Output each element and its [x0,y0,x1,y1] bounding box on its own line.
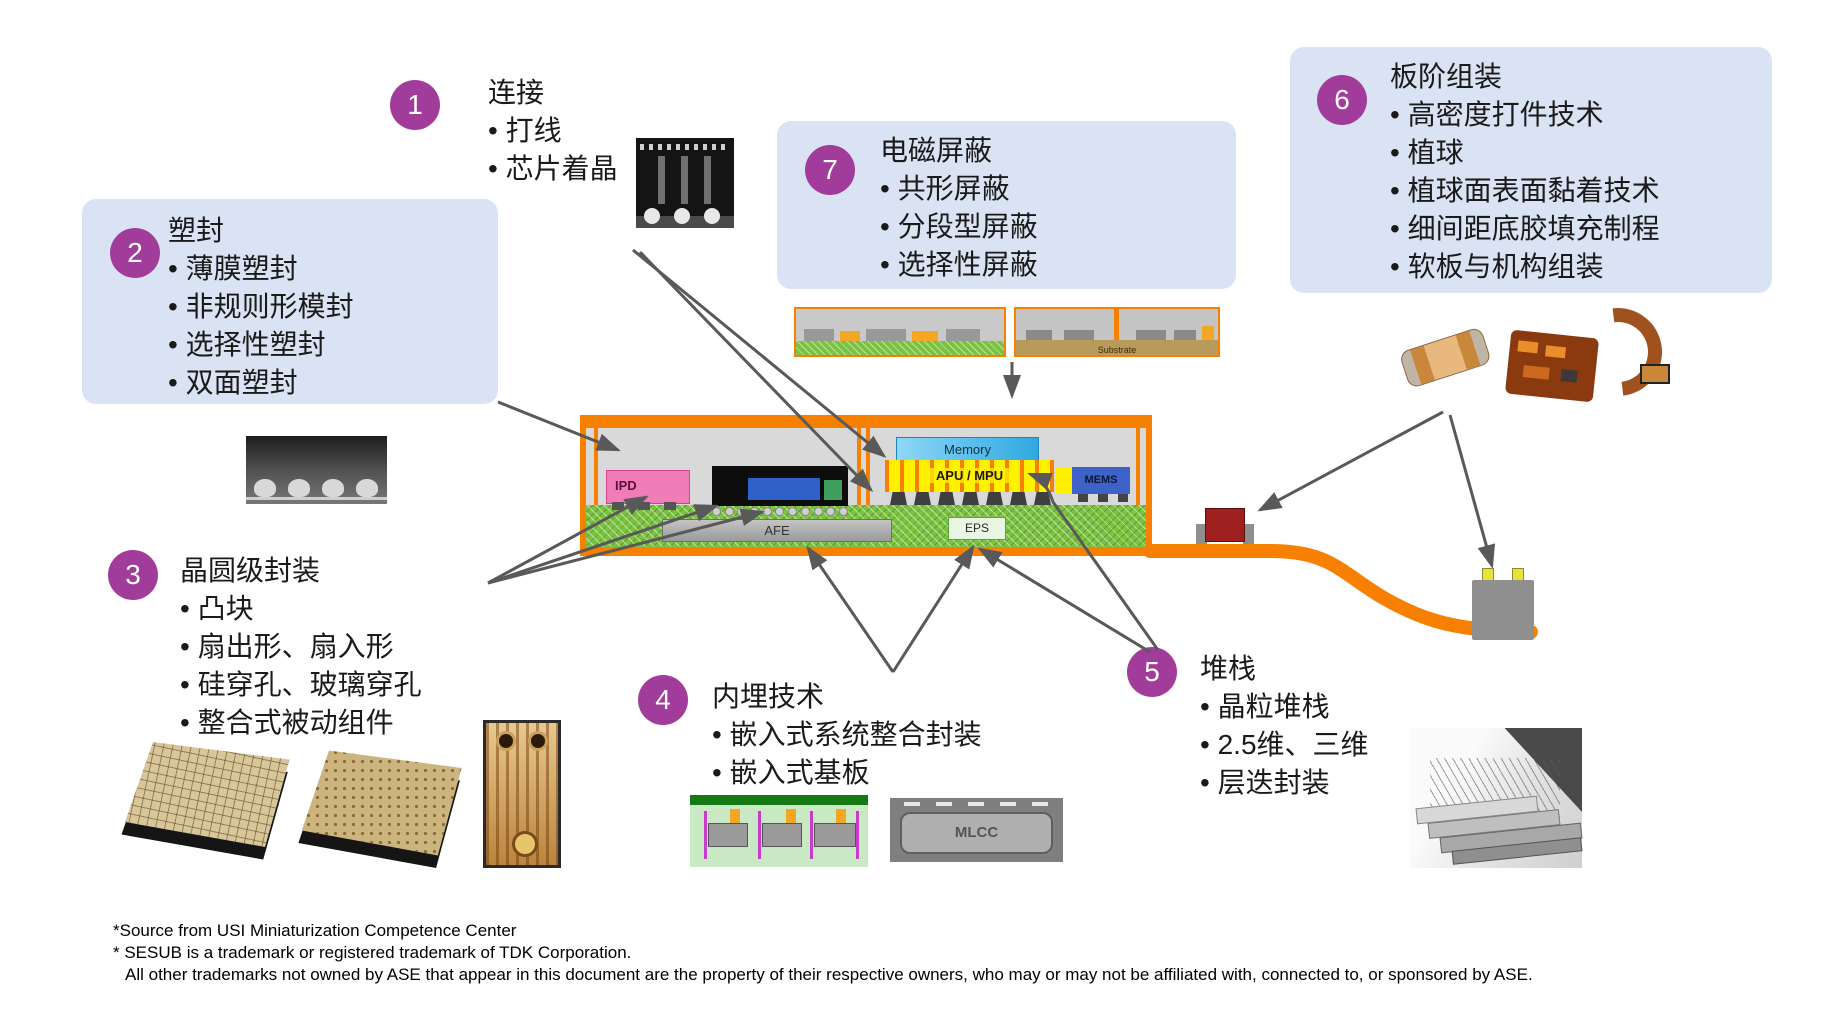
photo-stacked-die [1410,728,1582,868]
callout-number-2: 2 [110,228,160,278]
photo-wire-bond-micrograph [636,138,734,228]
arrow-assembly-to-connector [1450,415,1492,566]
photo-detail [856,811,859,859]
callout-number-6: 6 [1317,75,1367,125]
photo-detail [704,208,720,224]
photo-detail [810,811,813,859]
apu-solder [938,492,955,505]
mems-bump [1078,494,1088,502]
photo-detail [512,831,538,857]
photo-detail [322,479,344,497]
package-cross-section-diagram: IPD Memory APU / MPU MEMS [580,415,1152,556]
photo-detail [708,823,748,847]
bullet: 薄膜塑封 [168,250,354,288]
apu-mpu-label: APU / MPU [924,468,1016,483]
callout-title-connection: 连接 [488,74,618,112]
photo-detail [968,802,984,806]
mems-block: MEMS [1072,467,1130,494]
photo-detail [1026,330,1052,340]
callout-embedded-technology: 内埋技术 嵌入式系统整合封装 嵌入式基板 [712,678,982,792]
apu-solder [1010,492,1027,505]
photo-detail [1032,802,1048,806]
photo-detail [814,823,856,847]
shield-wall-divider-b [866,428,870,505]
eps-embedded-block: EPS [948,517,1006,540]
callout-board-level-assembly: 板阶组装 高密度打件技术 植球 植球面表面黏着技术 细间距底胶填充制程 软板与机… [1390,58,1660,286]
bullet: 扇出形、扇入形 [180,628,422,666]
photo-detail [866,329,906,341]
photo-detail [644,208,660,224]
photo-detail [804,329,834,341]
photo-detail [936,802,952,806]
ipd-bump [638,502,650,510]
apu-solder [986,492,1003,505]
footnote-trademark-disclaimer: All other trademarks not owned by ASE th… [125,964,1533,986]
mlcc-label: MLCC [955,824,998,841]
bullet: 选择性塑封 [168,326,354,364]
photo-detail [1640,364,1670,384]
apu-solder [1034,492,1051,505]
bullet: 晶粒堆栈 [1200,688,1369,726]
photo-detail [1202,326,1214,340]
apu-mpu-block: APU / MPU [885,460,1054,492]
photo-detail [1545,345,1566,358]
photo-detail [836,809,846,823]
photo-detail [1000,802,1016,806]
photo-flex-pcb-module [1508,308,1670,406]
ipd-bump [664,502,676,510]
arrow-embedded-to-eps [893,547,973,672]
arrow-stacking-to-substrate [980,549,1150,652]
apu-solder [914,492,931,505]
callout-molding: 塑封 薄膜塑封 非规则形模封 选择性塑封 双面塑封 [168,212,354,402]
photo-emi-conformal-shield [794,307,1006,357]
bullet: 共形屏蔽 [880,170,1038,208]
package-right-shield [1146,415,1152,547]
photo-detail [674,208,690,224]
callout-number-4: 4 [638,675,688,725]
callout-stacking: 堆栈 晶粒堆栈 2.5维、三维 层迭封装 [1200,650,1369,802]
photo-molding-micrograph [246,436,387,504]
photo-detail [528,731,548,751]
photo-detail [288,479,310,497]
photo-detail [254,479,276,497]
bullet: 层迭封装 [1200,764,1369,802]
ipd-block: IPD [606,470,690,504]
photo-detail [246,497,387,500]
afe-label: AFE [663,523,891,538]
solder-bump-row [712,507,848,516]
memory-label: Memory [897,442,1038,457]
bullet: 分段型屏蔽 [880,208,1038,246]
bullet: 高密度打件技术 [1390,96,1660,134]
bullet: 植球 [1390,134,1660,172]
shield-wall-divider-a [857,428,861,505]
bullet: 植球面表面黏着技术 [1390,172,1660,210]
photo-detail [912,331,938,341]
bullet: 软板与机构组装 [1390,248,1660,286]
bullet: 凸块 [180,590,422,628]
footnote-source: *Source from USI Miniaturization Compete… [113,920,516,942]
photo-detail [840,331,860,341]
photo-detail [1517,340,1538,353]
ipd-bump [612,502,624,510]
photo-detail [1174,330,1196,340]
bullet: 整合式被动组件 [180,704,422,742]
arrow-assembly-to-component [1260,412,1443,510]
flip-chip-die-block [712,466,848,506]
mems-yellow-element [1056,468,1072,494]
callout-title-stacking: 堆栈 [1200,650,1369,688]
bullet: 芯片着晶 [488,150,618,188]
photo-detail [946,329,980,341]
photo-emi-compartmental-shield: Substrate [1014,307,1220,357]
photo-detail [690,795,868,805]
bullet: 嵌入式基板 [712,754,982,792]
inner-die-green [824,480,842,500]
callout-number-3: 3 [108,550,158,600]
photo-detail [786,809,796,823]
callout-wafer-level-packaging: 晶圆级封装 凸块 扇出形、扇入形 硅穿孔、玻璃穿孔 整合式被动组件 [180,552,422,742]
photo-detail [658,156,665,204]
arrow-embedded-to-afe [808,548,893,672]
photo-mlcc-xray: MLCC [890,798,1063,862]
bullet: 非规则形模封 [168,288,354,326]
callout-title-assembly: 板阶组装 [1390,58,1660,96]
bullet: 双面塑封 [168,364,354,402]
photo-detail: MLCC [900,812,1053,854]
photo-substrate-strip [483,720,561,868]
footnote-sesub-trademark: * SESUB is a trademark or registered tra… [113,942,631,964]
photo-shield-cut [1114,309,1119,340]
bullet: 2.5维、三维 [1200,726,1369,764]
photo-detail [681,156,688,204]
photo-detail [640,144,730,150]
callout-title-molding: 塑封 [168,212,354,250]
callout-emi-shielding: 电磁屏蔽 共形屏蔽 分段型屏蔽 选择性屏蔽 [880,132,1038,284]
callout-number-7: 7 [805,145,855,195]
photo-detail [1398,326,1492,389]
mems-bump [1118,494,1128,502]
photo-detail [730,809,740,823]
photo-detail [704,156,711,204]
bullet: 选择性屏蔽 [880,246,1038,284]
eps-label: EPS [949,521,1005,535]
slide-canvas: IPD Memory APU / MPU MEMS [0,0,1837,1024]
photo-detail [704,811,707,859]
photo-detail [1064,330,1094,340]
callout-connection: 连接 打线 芯片着晶 [488,74,618,188]
callout-title-emi: 电磁屏蔽 [880,132,1038,170]
callout-title-wlp: 晶圆级封装 [180,552,422,590]
apu-solder [962,492,979,505]
photo-detail [762,823,802,847]
photo-mlcc-capacitor [1390,312,1497,401]
bullet: 打线 [488,112,618,150]
mems-label: MEMS [1072,474,1130,486]
callout-number-1: 1 [390,80,440,130]
callout-number-5: 5 [1127,647,1177,697]
bullet: 细间距底胶填充制程 [1390,210,1660,248]
bullet: 硅穿孔、玻璃穿孔 [180,666,422,704]
photo-detail [904,802,920,806]
photo-detail [1523,365,1550,380]
photo-detail [1560,369,1577,383]
shield-wall-right-inner [1136,428,1140,505]
package-top-shield [580,415,1152,428]
ipd-label: IPD [615,478,637,493]
package-bottom-layer [580,547,1152,556]
mems-bump [1098,494,1108,502]
photo-detail [796,341,1004,355]
substrate-label: Substrate [1098,345,1137,355]
apu-solder [890,492,907,505]
board-connector [1472,580,1534,640]
photo-substrate-band: Substrate [1016,340,1218,355]
photo-bga-package-2 [295,748,465,873]
photo-detail [1136,330,1166,340]
afe-embedded-block: AFE [662,519,892,542]
inner-die-blue [748,478,820,500]
shield-wall-left-inner [594,428,598,505]
bullet: 嵌入式系统整合封装 [712,716,982,754]
photo-bga-package-1 [118,742,293,867]
photo-detail [356,479,378,497]
photo-detail [758,811,761,859]
cable-component-body [1205,508,1245,542]
memory-block: Memory [896,437,1039,462]
photo-detail [496,731,516,751]
callout-title-embedded: 内埋技术 [712,678,982,716]
photo-embedded-cross-section [690,795,868,867]
